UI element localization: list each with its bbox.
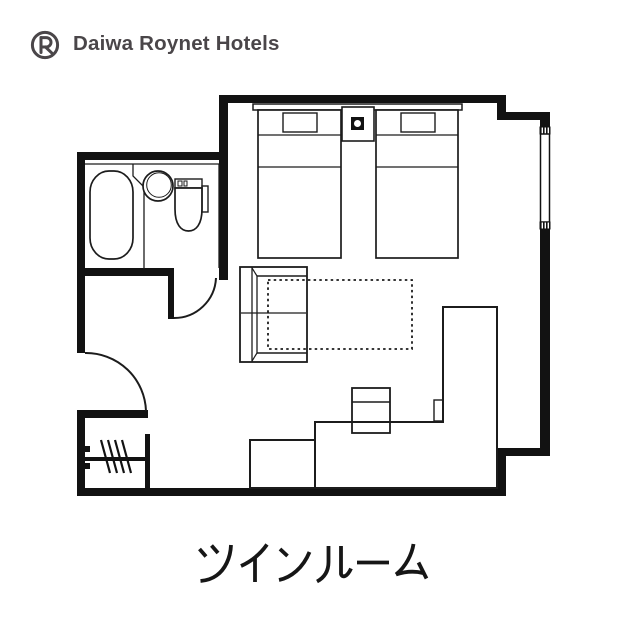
wall-right-upper: [540, 112, 550, 127]
screenshot-root: Daiwa Roynet Hotels: [0, 0, 624, 624]
closet-hangers: [101, 440, 131, 473]
window-cap-bottom: [540, 222, 550, 229]
bedside-lamp-bulb: [354, 120, 361, 127]
sofa-armrests: [257, 276, 307, 353]
entrance-door-swing-arc: [85, 353, 146, 411]
washbasin: [143, 171, 173, 201]
sofa-outline: [240, 267, 307, 362]
entrance-door-panel: [77, 410, 148, 418]
desk-chair: [352, 388, 390, 433]
bathroom-door: [168, 276, 216, 319]
wall-bathroom-bottom: [77, 268, 174, 276]
toilet: [175, 179, 208, 231]
entrance-door: [77, 353, 148, 418]
wall-bathroom-right: [219, 95, 228, 280]
bathtub: [90, 171, 133, 259]
toilet-cistern: [175, 179, 202, 188]
rail-bracket-top: [85, 446, 90, 452]
wall-left-upper: [77, 152, 85, 353]
closet-partition: [145, 434, 150, 489]
wall-bathroom-top: [77, 152, 228, 160]
luggage-bench: [250, 440, 315, 488]
closet-rail: [85, 457, 147, 461]
desk-shelf-step: [434, 400, 443, 421]
vanity-divider: [133, 164, 144, 269]
sofa-corner-joints: [252, 268, 257, 361]
bathroom: [85, 164, 219, 269]
toilet-bowl: [175, 188, 202, 231]
floorplan-drawing: [0, 0, 624, 624]
bathroom-door-swing-arc: [174, 278, 216, 318]
sofa-bed-extension-dotted: [268, 280, 412, 349]
window: [540, 127, 550, 229]
room-type-label-glyphs: [200, 544, 427, 582]
wall-top: [220, 95, 506, 103]
window-cap-top: [540, 127, 550, 134]
bathroom-door-panel: [168, 276, 174, 319]
toilet-side-panel: [202, 186, 208, 212]
bed-area: [253, 104, 462, 258]
wall-right-lower: [540, 229, 550, 456]
window-glass: [541, 134, 550, 222]
rail-bracket-bottom: [85, 463, 90, 469]
wall-bottom: [77, 488, 506, 496]
wall-left-lower: [77, 411, 85, 496]
desk-counter: [315, 307, 497, 488]
sofa: [240, 267, 307, 362]
desk-area: [250, 307, 497, 488]
